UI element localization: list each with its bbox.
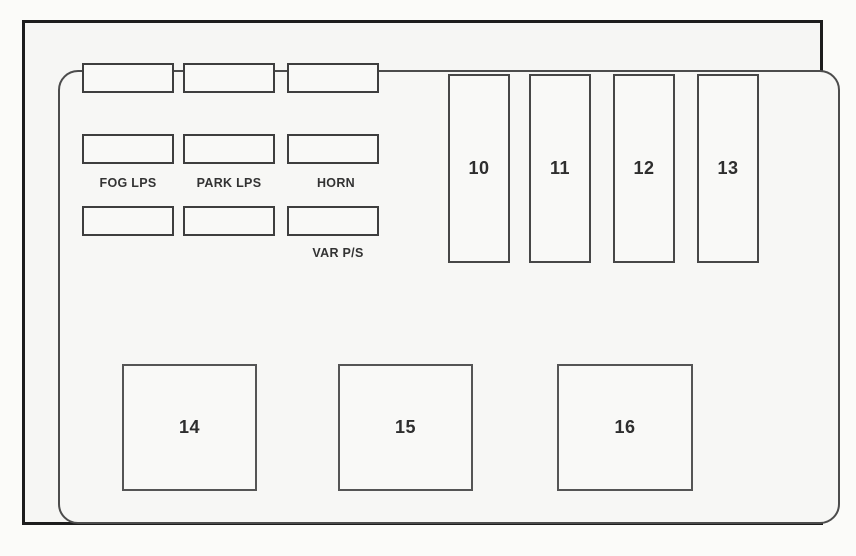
relay-block-15: 15 bbox=[338, 364, 473, 491]
fuse-slot-10: 10 bbox=[448, 74, 510, 263]
relay-block-14: 14 bbox=[122, 364, 257, 491]
relay-block-16: 16 bbox=[557, 364, 693, 491]
relay-slot-horn bbox=[287, 134, 379, 164]
relay-slot-park-lps bbox=[183, 134, 275, 164]
relay-slot-row1-col2 bbox=[183, 63, 275, 93]
label-var-ps: VAR P/S bbox=[282, 246, 394, 260]
relay-slot-var-ps bbox=[287, 206, 379, 236]
fuse-slot-11: 11 bbox=[529, 74, 591, 263]
relay-slot-row1-col1 bbox=[82, 63, 174, 93]
relay-slot-fog-lps bbox=[82, 134, 174, 164]
fuse-slot-13: 13 bbox=[697, 74, 759, 263]
relay-slot-row1-col3 bbox=[287, 63, 379, 93]
label-park-lps: PARK LPS bbox=[173, 176, 285, 190]
relay-slot-row3-col2 bbox=[183, 206, 275, 236]
label-fog-lps: FOG LPS bbox=[72, 176, 184, 190]
fuse-slot-12: 12 bbox=[613, 74, 675, 263]
fuse-box-diagram: FOG LPS PARK LPS HORN VAR P/S 10 11 12 1… bbox=[0, 0, 856, 556]
relay-slot-row3-col1 bbox=[82, 206, 174, 236]
label-horn: HORN bbox=[280, 176, 392, 190]
